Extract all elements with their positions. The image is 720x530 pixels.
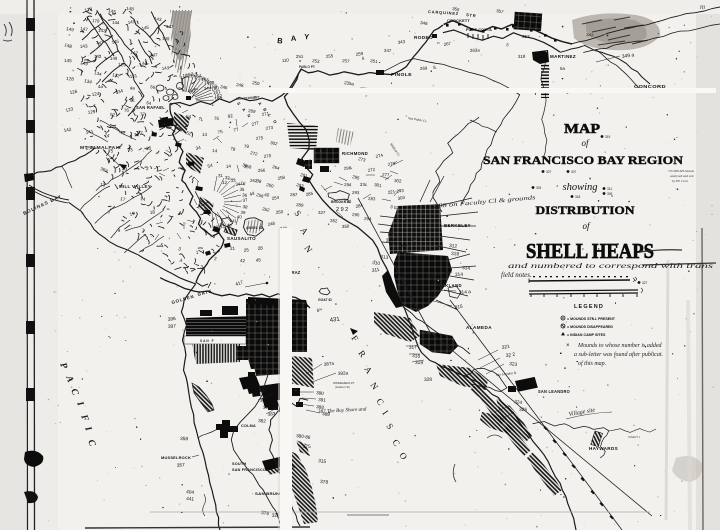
svg-text:INSERT 1: INSERT 1 (628, 435, 641, 439)
svg-text:283: 283 (368, 196, 376, 201)
svg-text:143: 143 (98, 28, 106, 33)
svg-text:SAN FRANCISCO BAY REGION: SAN FRANCISCO BAY REGION (483, 155, 684, 167)
svg-text:RODEO: RODEO (414, 35, 433, 40)
svg-text:144: 144 (112, 20, 120, 25)
svg-text:287: 287 (290, 192, 298, 197)
svg-text:313: 313 (380, 254, 389, 261)
svg-text:352: 352 (330, 218, 338, 223)
svg-text:76: 76 (124, 108, 130, 113)
svg-text:314: 314 (462, 265, 471, 272)
svg-text:30?: 30? (263, 404, 272, 410)
svg-text:PABLO PT.: PABLO PT. (299, 65, 316, 69)
svg-text:147: 147 (166, 24, 174, 29)
svg-text:248: 248 (236, 82, 244, 88)
svg-text:131: 131 (129, 73, 137, 79)
svg-text:14: 14 (226, 164, 232, 169)
svg-text:318: 318 (575, 195, 581, 199)
svg-text:13: 13 (100, 182, 106, 188)
svg-text:262: 262 (250, 178, 258, 183)
svg-text:149: 149 (110, 56, 118, 61)
svg-text:323: 323 (509, 361, 518, 368)
svg-text:386: 386 (260, 397, 269, 403)
svg-text:= MOUNDS DISAPPEARED: = MOUNDS DISAPPEARED (567, 325, 613, 329)
svg-text:369: 369 (399, 243, 408, 249)
svg-text:266: 266 (258, 168, 266, 173)
svg-text:Pt: Pt (437, 41, 440, 45)
svg-text:315: 315 (318, 458, 327, 465)
svg-text:149: 149 (162, 36, 170, 41)
svg-text:312: 312 (449, 243, 458, 250)
svg-text:257: 257 (342, 58, 350, 64)
svg-text:B: B (277, 36, 285, 46)
svg-text:317: 317 (409, 344, 418, 351)
svg-text:ALAMEDA: ALAMEDA (466, 325, 492, 330)
svg-text:MARTINEZ: MARTINEZ (550, 54, 576, 59)
svg-text:129: 129 (118, 62, 126, 67)
svg-text:DISTRIBUTION: DISTRIBUTION (536, 205, 636, 217)
svg-text:325: 325 (519, 407, 527, 413)
svg-text:319: 319 (605, 135, 611, 139)
svg-text:148: 148 (126, 6, 134, 12)
svg-text:GOAT ID: GOAT ID (318, 298, 332, 302)
svg-text:250: 250 (276, 209, 284, 215)
svg-text:18: 18 (150, 209, 156, 215)
svg-text:110: 110 (282, 57, 290, 63)
svg-text:79: 79 (244, 144, 250, 149)
svg-text:243: 243 (188, 88, 196, 94)
svg-text:318: 318 (518, 54, 526, 59)
svg-text:field notes.: field notes. (501, 271, 532, 279)
svg-text:145: 145 (64, 58, 72, 63)
svg-text:· SAN BRUNO: · SAN BRUNO (252, 491, 283, 496)
svg-text:303: 303 (536, 186, 542, 190)
svg-text:324: 324 (514, 399, 523, 406)
svg-text:54: 54 (186, 114, 192, 119)
svg-text:291: 291 (344, 198, 352, 204)
svg-text:124: 124 (91, 91, 100, 97)
svg-text:178: 178 (92, 18, 100, 24)
svg-text:showing: showing (562, 182, 597, 193)
svg-text:MUSSELROCK: MUSSELROCK (161, 456, 191, 460)
svg-text:314: 314 (455, 272, 463, 278)
svg-text:318: 318 (451, 251, 460, 257)
svg-text:327: 327 (642, 281, 648, 285)
svg-text:52: 52 (110, 112, 116, 117)
svg-text:14: 14 (202, 132, 208, 137)
svg-text:311: 311 (371, 267, 380, 274)
svg-text:14: 14 (212, 148, 218, 153)
svg-text:13: 13 (146, 146, 152, 151)
svg-text:357: 357 (177, 462, 186, 469)
svg-text:A: A (291, 33, 299, 42)
svg-text:PINOLE: PINOLE (391, 72, 412, 77)
svg-text:a sub-letter was found after p: a sub-letter was found after publicat. (574, 351, 663, 358)
svg-text:7/9-988 AH Amann: 7/9-988 AH Amann (668, 169, 695, 173)
svg-text:149: 149 (127, 19, 135, 25)
svg-text:350: 350 (342, 224, 350, 229)
svg-text:397: 397 (168, 323, 177, 330)
svg-text:6³⁹: 6³⁹ (316, 307, 323, 313)
svg-text:72: 72 (120, 130, 126, 135)
svg-text:S.: S. (433, 65, 438, 70)
svg-text:441: 441 (186, 496, 195, 503)
svg-text:347: 347 (384, 48, 392, 53)
svg-text:SHELL HEAPS: SHELL HEAPS (526, 239, 654, 263)
svg-text:76: 76 (214, 116, 220, 121)
svg-text:305: 305 (607, 192, 613, 196)
svg-text:23: 23 (122, 166, 128, 171)
svg-text:SOUTH: SOUTH (232, 462, 246, 466)
svg-text:310: 310 (372, 260, 381, 267)
svg-text:269: 269 (420, 66, 428, 71)
svg-text:77: 77 (140, 112, 146, 117)
svg-text:SAN LEANDRO: SAN LEANDRO (538, 389, 570, 394)
svg-text:128: 128 (66, 76, 74, 82)
svg-text:382: 382 (258, 418, 267, 424)
svg-text:×: × (566, 343, 570, 349)
svg-text:263a: 263a (470, 47, 481, 53)
svg-text:327: 327 (318, 210, 326, 215)
svg-text:358: 358 (180, 436, 189, 442)
svg-text:270: 270 (264, 153, 272, 159)
svg-text:143: 143 (162, 65, 170, 71)
svg-text:378: 378 (320, 479, 329, 486)
svg-text:143: 143 (94, 54, 102, 59)
svg-text:391: 391 (318, 397, 327, 403)
svg-text:328: 328 (424, 377, 432, 383)
svg-text:HAYWARDS: HAYWARDS (589, 446, 618, 451)
svg-text:396: 396 (167, 316, 176, 323)
svg-text:253: 253 (312, 58, 320, 64)
svg-text:12: 12 (222, 180, 228, 185)
svg-text:293: 293 (352, 190, 360, 195)
svg-text:(Hudson St): (Hudson St) (335, 385, 350, 389)
svg-text:342: 342 (586, 32, 594, 38)
svg-text:392a: 392a (338, 370, 349, 376)
svg-text:314 a: 314 a (459, 289, 472, 296)
svg-text:147: 147 (130, 50, 139, 56)
svg-text:5a: 5a (560, 66, 566, 71)
svg-text:PORT COSTA: PORT COSTA (466, 28, 492, 32)
svg-text:= MOUNDS STILL PRESENT: = MOUNDS STILL PRESENT (567, 317, 616, 321)
svg-text:BERKELEY: BERKELEY (444, 223, 471, 228)
svg-text:MAP: MAP (564, 121, 600, 136)
svg-text:SAN F: SAN F (200, 339, 215, 343)
svg-text:and numbered to correspond wit: and numbered to correspond with trans (508, 262, 713, 270)
svg-text:251: 251 (296, 54, 304, 59)
svg-text:COLMA: COLMA (241, 423, 256, 428)
svg-text:307: 307 (571, 170, 577, 174)
svg-text:by EE Cont: by EE Cont (672, 179, 689, 183)
svg-text:302: 302 (394, 178, 402, 184)
svg-text:255: 255 (326, 53, 334, 59)
svg-text:290: 290 (352, 212, 360, 217)
svg-text:2 9 2: 2 9 2 (336, 207, 348, 213)
svg-text:353: 353 (522, 34, 530, 39)
svg-text:SAN FRANCISCO: SAN FRANCISCO (232, 468, 266, 472)
svg-text:275: 275 (256, 135, 264, 141)
svg-text:ANGEL ID.: ANGEL ID. (246, 226, 263, 230)
svg-text:294: 294 (344, 182, 352, 187)
svg-text:Mounds to whose number is adde: Mounds to whose number is added (577, 343, 662, 349)
svg-text:23c: 23c (360, 182, 368, 187)
svg-text:35: 35 (239, 187, 245, 192)
svg-text:4a: 4a (98, 84, 103, 89)
svg-text:42: 42 (240, 258, 246, 263)
svg-text:378: 378 (261, 510, 270, 517)
svg-text:143: 143 (80, 43, 88, 49)
svg-text:LEGEND: LEGEND (574, 304, 604, 310)
svg-text:311: 311 (607, 187, 612, 191)
svg-text:m: m (700, 3, 705, 11)
svg-text:268: 268 (244, 164, 252, 170)
svg-text:147: 147 (96, 40, 104, 46)
svg-text:21: 21 (230, 246, 236, 251)
svg-text:307: 307 (546, 170, 552, 174)
svg-text:analysed and sub: analysed and sub (670, 174, 694, 178)
svg-text:244: 244 (204, 85, 212, 91)
svg-text:CROCKETT: CROCKETT (447, 19, 471, 23)
svg-text:SAUSALITO: SAUSALITO (227, 236, 256, 241)
svg-text:147: 147 (150, 52, 158, 58)
svg-text:= INDIAN CAMP SITES: = INDIAN CAMP SITES (567, 333, 606, 337)
svg-text:277: 277 (382, 172, 390, 177)
svg-text:404: 404 (186, 489, 195, 496)
svg-text:366: 366 (386, 237, 395, 244)
svg-text:of this map.: of this map. (578, 360, 606, 367)
svg-text:RICHMOND: RICHMOND (342, 151, 368, 156)
svg-text:71: 71 (138, 130, 144, 135)
svg-text:289: 289 (296, 202, 304, 208)
svg-text:Y: Y (304, 32, 312, 41)
